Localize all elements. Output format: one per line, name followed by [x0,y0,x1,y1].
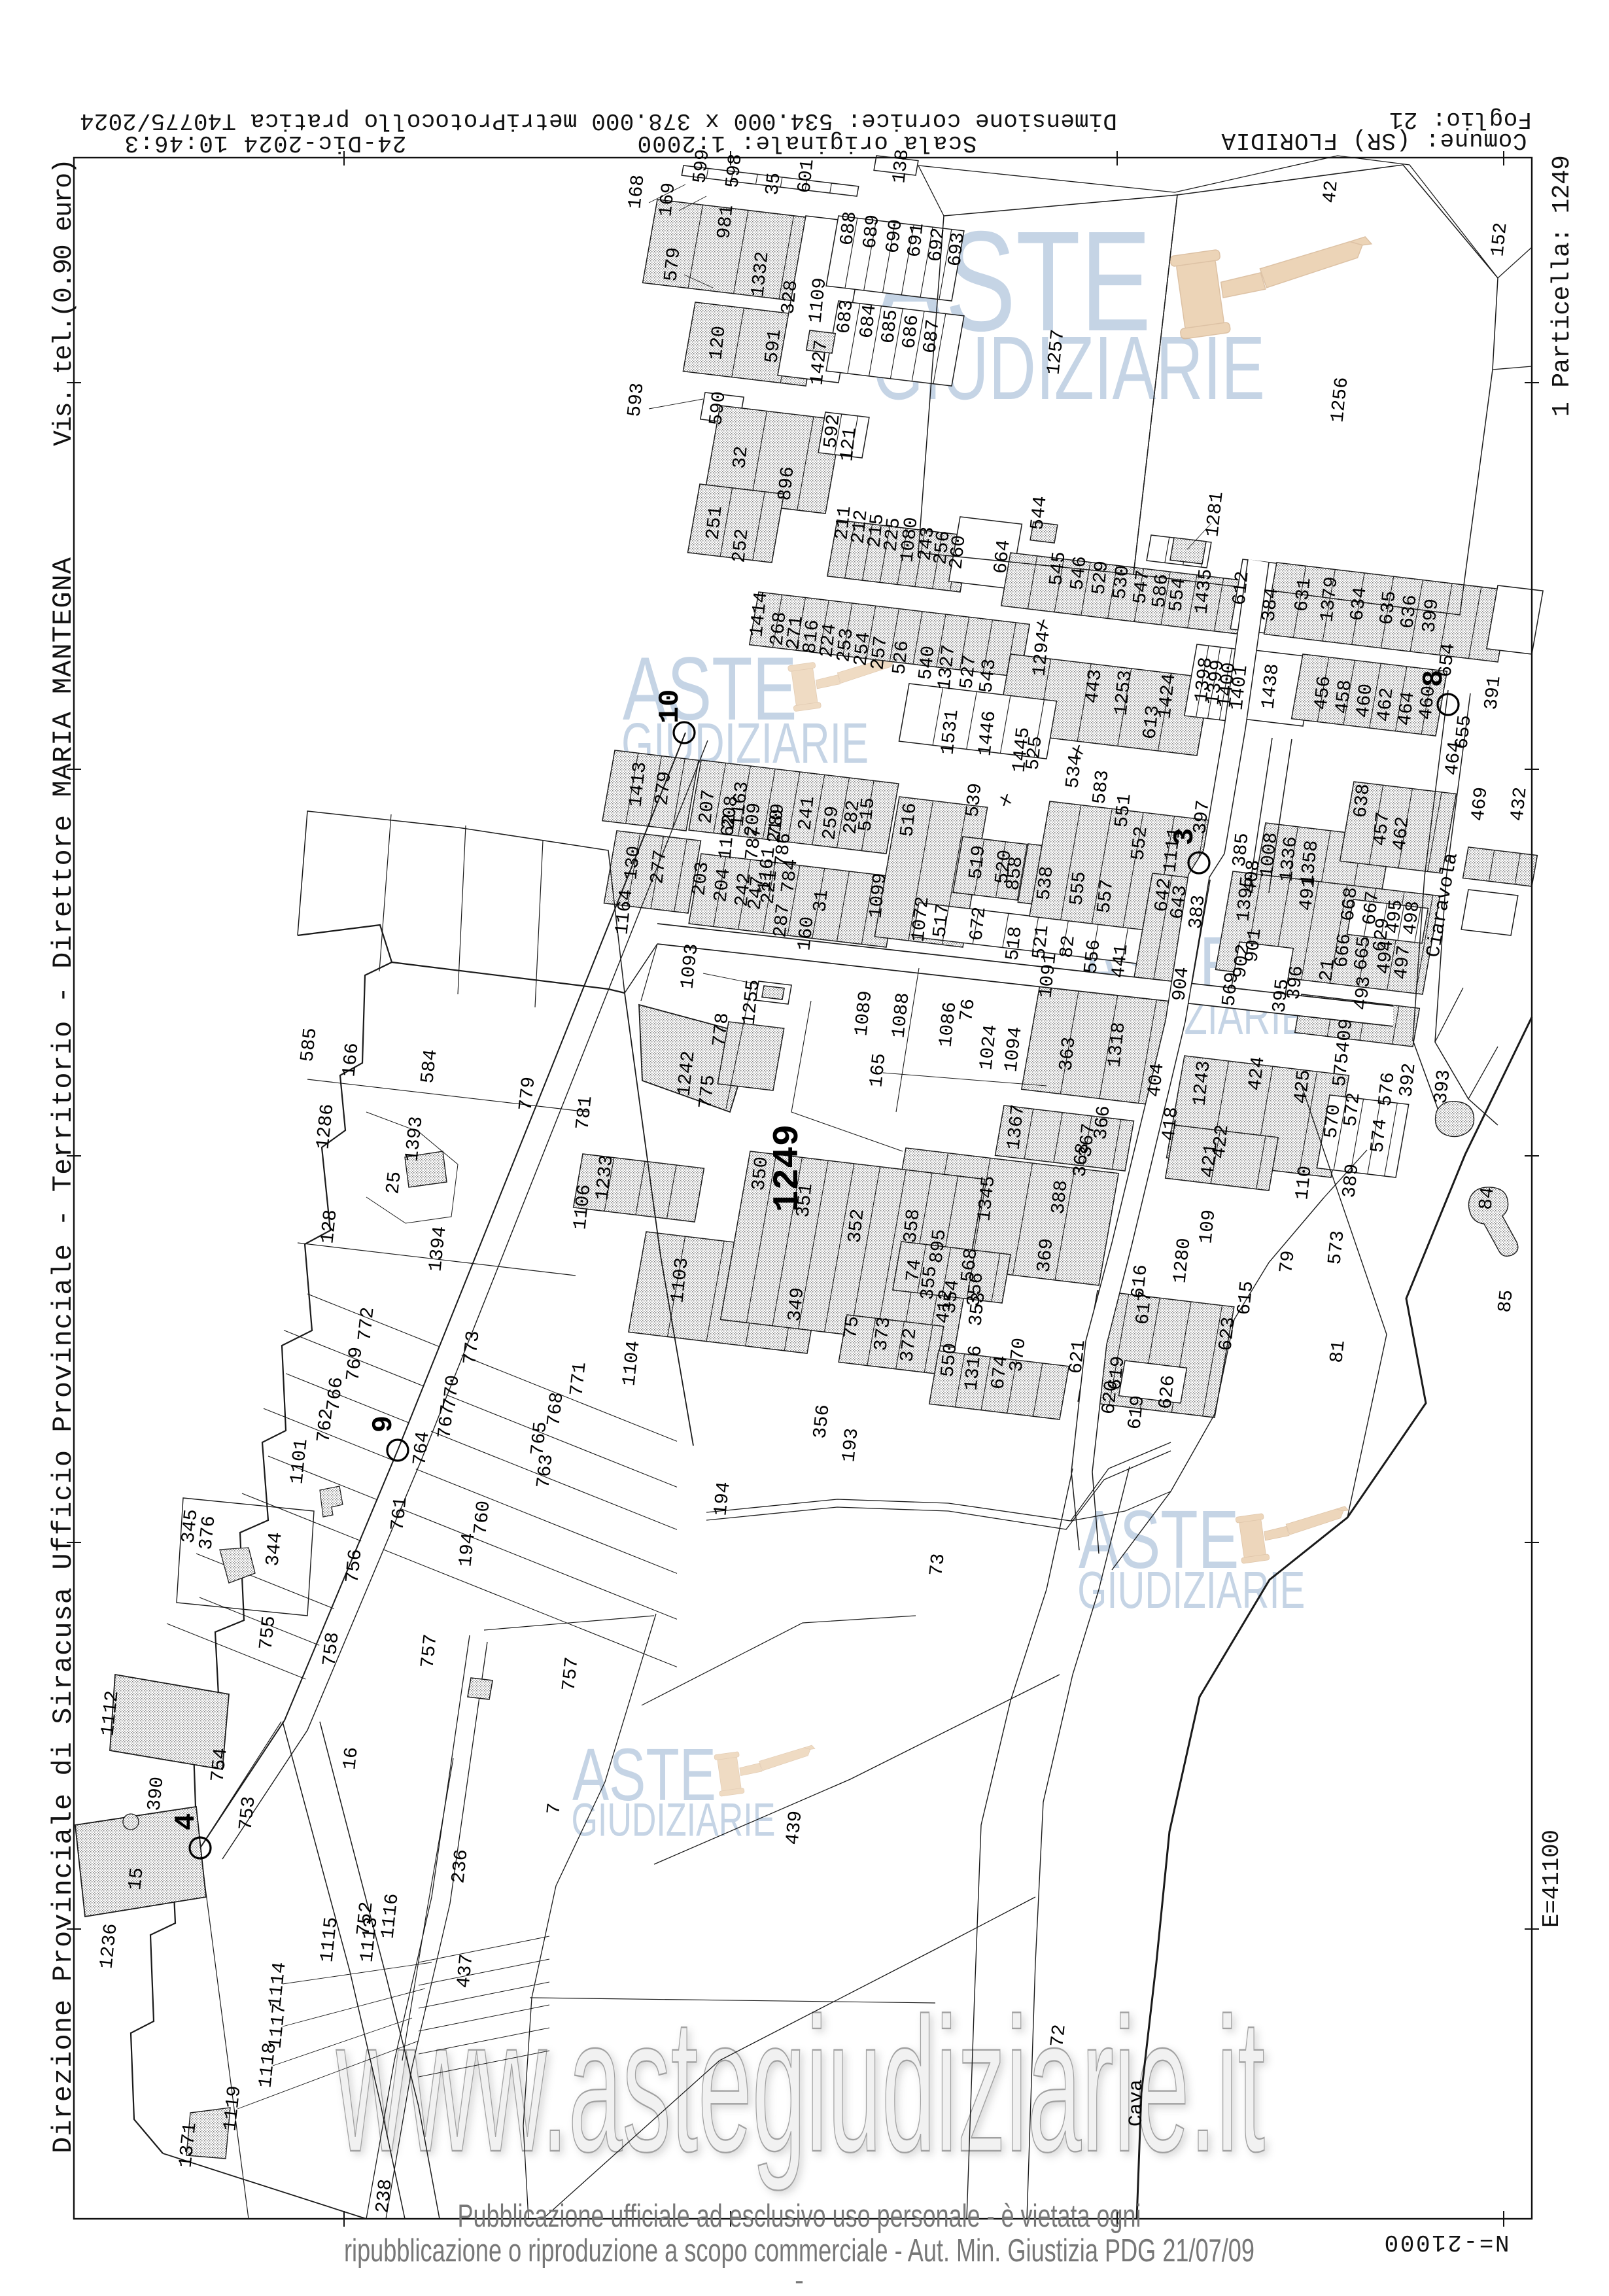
svg-text:165: 165 [865,1052,890,1088]
svg-text:-: - [795,2265,804,2295]
svg-text:619: 619 [1124,1395,1149,1431]
svg-text:764: 764 [409,1431,434,1467]
svg-text:152: 152 [1487,222,1512,258]
svg-text:109: 109 [1195,1209,1220,1245]
svg-text:384: 384 [1258,587,1283,623]
svg-text:352: 352 [844,1208,869,1244]
svg-text:779: 779 [515,1076,540,1112]
svg-text:437: 437 [453,1953,477,1989]
svg-text:583: 583 [1088,769,1113,805]
svg-text:425: 425 [1290,1069,1315,1105]
svg-text:769: 769 [342,1346,367,1382]
svg-text:664: 664 [990,539,1014,575]
svg-text:593: 593 [623,382,648,418]
svg-text:Scala originale: 1:2000: Scala originale: 1:2000 [638,130,977,156]
svg-text:896: 896 [774,466,799,502]
svg-text:GIUDIZIARIE: GIUDIZIARIE [571,1794,775,1847]
svg-text:629: 629 [1369,917,1394,953]
svg-text:601: 601 [793,158,818,194]
svg-text:252: 252 [728,528,753,564]
svg-text:668: 668 [1337,886,1362,922]
svg-text:259: 259 [818,805,843,841]
svg-text:615: 615 [1233,1280,1258,1316]
svg-text:160: 160 [793,916,818,952]
svg-text:389: 389 [1338,1163,1363,1199]
svg-text:390: 390 [143,1776,168,1812]
svg-text:376: 376 [195,1515,220,1551]
svg-text:9: 9 [368,1416,400,1433]
svg-text:585: 585 [296,1027,321,1063]
svg-text:81: 81 [1326,1339,1349,1364]
svg-text:356: 356 [809,1404,834,1440]
svg-text:544: 544 [1026,495,1051,531]
svg-text:E=41100: E=41100 [1538,1830,1565,1928]
svg-text:904: 904 [1168,966,1193,1002]
svg-text:654: 654 [1434,642,1459,678]
svg-text:128: 128 [317,1209,341,1245]
svg-text:358: 358 [899,1208,924,1244]
svg-text:623: 623 [1215,1316,1239,1352]
svg-text:569: 569 [1218,971,1243,1007]
svg-text:110: 110 [1291,1165,1316,1201]
svg-text:1 Particella: 1249: 1 Particella: 1249 [1548,155,1576,417]
svg-text:207: 207 [695,789,719,825]
svg-text:491: 491 [1295,876,1320,912]
svg-text:391: 391 [1480,675,1505,711]
svg-text:515: 515 [854,797,879,833]
svg-text:399: 399 [1418,598,1443,634]
svg-text:Pubblicazione ufficiale ad esc: Pubblicazione ufficiale ad esclusivo uso… [458,2199,1141,2234]
svg-text:168: 168 [624,174,649,210]
svg-text:120: 120 [705,325,730,361]
svg-text:ripubblicazione o riproduzione: ripubblicazione o riproduzione a scopo c… [344,2233,1254,2269]
svg-text:372: 372 [896,1327,921,1363]
svg-text:758: 758 [319,1631,343,1667]
svg-text:85: 85 [1494,1289,1517,1313]
svg-text:79: 79 [1275,1249,1299,1274]
svg-text:539: 539 [961,782,986,818]
svg-text:72: 72 [1047,2023,1070,2048]
svg-text:25: 25 [382,1170,406,1195]
svg-text:4: 4 [170,1813,203,1830]
svg-text:24-Dic-2024 10:46:3: 24-Dic-2024 10:46:3 [125,130,407,156]
svg-text:7: 7 [543,1802,566,1816]
svg-text:687: 687 [919,319,944,355]
svg-text:526: 526 [888,640,913,676]
svg-text:369: 369 [1033,1238,1058,1274]
svg-text:579: 579 [660,247,685,283]
svg-text:408: 408 [1239,859,1264,895]
svg-text:591: 591 [761,328,786,364]
svg-text:370: 370 [1005,1337,1030,1373]
svg-text:194: 194 [710,1481,735,1517]
svg-text:84: 84 [1475,1186,1498,1211]
svg-text:555: 555 [1065,871,1090,907]
svg-text:Vis. tel.(0.90 euro): Vis. tel.(0.90 euro) [50,158,79,446]
svg-text:251: 251 [702,505,727,541]
svg-text:518: 518 [1001,926,1026,962]
svg-text:765: 765 [527,1421,551,1457]
svg-text:15: 15 [124,1866,148,1891]
svg-text:Comune: (SR) FLORIDIA: Comune: (SR) FLORIDIA [1221,127,1527,154]
svg-text:10: 10 [654,689,687,724]
svg-text:464: 464 [1394,691,1419,727]
svg-text:634: 634 [1346,586,1371,622]
svg-text:754: 754 [207,1747,232,1783]
svg-text:760: 760 [470,1500,494,1536]
svg-text:396: 396 [1283,965,1307,1001]
svg-text:981: 981 [713,204,738,240]
svg-text:373: 373 [870,1316,895,1352]
svg-text:895: 895 [926,1228,950,1264]
svg-text:693: 693 [944,232,969,268]
svg-text:260: 260 [945,534,970,570]
svg-text:766: 766 [322,1376,347,1412]
svg-text:257: 257 [867,635,891,671]
svg-text:590: 590 [705,391,730,426]
svg-text:460: 460 [1415,685,1440,721]
svg-text:757: 757 [417,1633,441,1669]
svg-text:421: 421 [1197,1143,1222,1179]
svg-text:432: 432 [1506,786,1531,822]
svg-text:584: 584 [417,1049,441,1085]
svg-text:469: 469 [1467,786,1492,822]
svg-text:279: 279 [651,771,676,807]
svg-text:621: 621 [1065,1339,1090,1375]
svg-text:443: 443 [1081,669,1106,704]
svg-text:383: 383 [1185,894,1209,930]
svg-text:538: 538 [1033,865,1058,901]
svg-text:GIUDIZIARIE: GIUDIZIARIE [1077,1561,1305,1619]
svg-text:757: 757 [558,1656,583,1692]
svg-text:388: 388 [1047,1179,1072,1215]
svg-text:786: 786 [770,832,795,868]
svg-text:772: 772 [354,1306,379,1342]
svg-text:349: 349 [784,1287,808,1323]
svg-text:277: 277 [646,849,671,885]
svg-text:418: 418 [1158,1106,1183,1142]
svg-text:404: 404 [1143,1062,1168,1098]
svg-text:753: 753 [235,1796,260,1832]
svg-text:756: 756 [341,1548,366,1584]
svg-text:763: 763 [532,1453,557,1489]
svg-text:287: 287 [769,903,794,939]
svg-text:31: 31 [809,888,833,913]
svg-text:688: 688 [836,211,861,247]
svg-text:858: 858 [1002,856,1027,892]
svg-text:534: 534 [1062,754,1086,790]
svg-text:768: 768 [543,1391,568,1427]
svg-text:193: 193 [838,1427,863,1463]
svg-text:761: 761 [387,1496,411,1532]
svg-text:517: 517 [929,903,954,939]
svg-text:762: 762 [313,1408,337,1444]
svg-text:551: 551 [1111,793,1135,829]
svg-text:516: 516 [896,802,921,838]
svg-text:684: 684 [856,304,880,339]
svg-text:397: 397 [1189,799,1214,835]
svg-text:16: 16 [339,1746,362,1771]
svg-text:552: 552 [1127,826,1152,861]
svg-text:574: 574 [1366,1118,1391,1154]
svg-text:Cava: Cava [1126,2079,1148,2127]
svg-text:Direzione Provinciale di Sirac: Direzione Provinciale di Siracusa Uffici… [48,557,79,2153]
svg-text:631: 631 [1290,577,1315,613]
svg-text:328: 328 [777,279,802,315]
svg-text:439: 439 [782,1810,806,1846]
svg-text:557: 557 [1093,878,1118,914]
svg-text:130: 130 [620,845,645,881]
svg-text:241: 241 [794,795,819,831]
svg-text:778: 778 [708,1012,733,1048]
svg-text:550: 550 [937,1342,961,1378]
svg-text:412: 412 [932,1289,957,1325]
svg-text:638: 638 [1349,783,1374,819]
svg-text:462: 462 [1389,816,1413,852]
svg-text:166: 166 [338,1042,363,1078]
svg-text:617: 617 [1132,1290,1156,1326]
svg-text:775: 775 [695,1074,719,1110]
svg-text:238: 238 [372,2178,396,2214]
svg-text:76: 76 [956,998,979,1022]
svg-text:497: 497 [1390,945,1415,981]
svg-text:169: 169 [655,182,680,218]
svg-text:368: 368 [1069,1142,1094,1178]
svg-text:612: 612 [1228,570,1253,606]
svg-text:363: 363 [1055,1036,1080,1072]
svg-text:73: 73 [926,1552,949,1577]
svg-text:771: 771 [566,1361,591,1397]
svg-text:554: 554 [1165,577,1190,613]
svg-text:1249: 1249 [767,1124,808,1212]
svg-text:424: 424 [1244,1056,1269,1092]
svg-text:689: 689 [859,214,884,250]
svg-text:441: 441 [1107,943,1132,979]
svg-text:626: 626 [1154,1374,1179,1410]
svg-text:556: 556 [1080,939,1105,975]
svg-text:121: 121 [836,426,861,462]
svg-text:464: 464 [1441,740,1466,776]
svg-text:598: 598 [721,153,746,189]
svg-text:236: 236 [447,1849,472,1885]
svg-text:353: 353 [965,1291,990,1327]
svg-text:767: 767 [434,1404,458,1440]
svg-text:755: 755 [255,1615,280,1651]
svg-text:519: 519 [965,844,990,880]
svg-text:636: 636 [1396,594,1421,630]
svg-text:203: 203 [688,861,713,897]
svg-text:572: 572 [1340,1092,1364,1128]
svg-text:683: 683 [833,299,857,335]
svg-text:619: 619 [1104,1355,1129,1391]
svg-text:672: 672 [965,906,990,942]
svg-text:781: 781 [572,1095,597,1131]
svg-text:573: 573 [1324,1230,1349,1266]
svg-text:690: 690 [882,218,907,254]
svg-text:392: 392 [1395,1062,1420,1098]
svg-text:493: 493 [1350,975,1375,1011]
svg-text:498: 498 [1399,900,1424,936]
svg-text:42: 42 [1319,179,1342,204]
svg-text:393: 393 [1430,1069,1455,1105]
svg-text:344: 344 [262,1531,286,1567]
svg-text:773: 773 [459,1330,484,1366]
svg-text:546: 546 [1066,555,1091,591]
svg-text:75: 75 [840,1315,863,1340]
svg-text:543: 543 [975,658,1000,694]
svg-text:32: 32 [729,445,752,470]
svg-text:35: 35 [761,171,785,196]
svg-text:194: 194 [455,1532,479,1568]
